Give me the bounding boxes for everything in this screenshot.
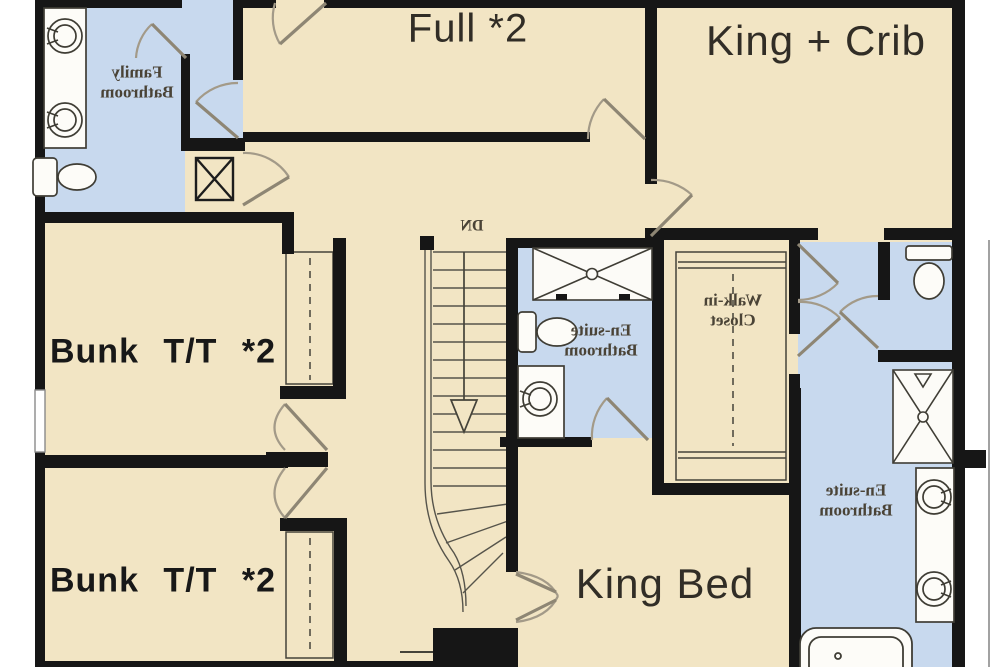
room-label-bunk-top: Bunk T/T *2: [50, 333, 276, 372]
room-label-full: Full *2: [408, 7, 528, 52]
center-shower-icon: [533, 248, 652, 300]
master-shower-icon: [893, 370, 953, 463]
room-label-family-bathroom: Family Bathroom: [100, 63, 173, 104]
room-label-king-crib: King + Crib: [706, 17, 926, 65]
family-bathroom-vanity-icon: [44, 8, 86, 148]
linen-closet-icon: [196, 158, 233, 200]
floor-plan: Full *2 King + Crib Bunk T/T *2 Bunk T/T…: [0, 0, 1000, 667]
room-label-king-bed: King Bed: [576, 560, 754, 608]
stairs-dn-label: DN: [460, 216, 483, 235]
room-label-bunk-bottom: Bunk T/T *2: [50, 562, 276, 601]
bathtub-icon: [800, 628, 912, 667]
room-label-walk-in-closet: Walk-in Closet: [704, 291, 763, 332]
center-vanity-sink-icon: [518, 366, 564, 438]
room-label-ensuite-center: En-suite Bathroom: [564, 321, 637, 362]
room-label-ensuite-right: En-suite Bathroom: [819, 481, 892, 522]
master-vanity-icon: [916, 468, 954, 622]
